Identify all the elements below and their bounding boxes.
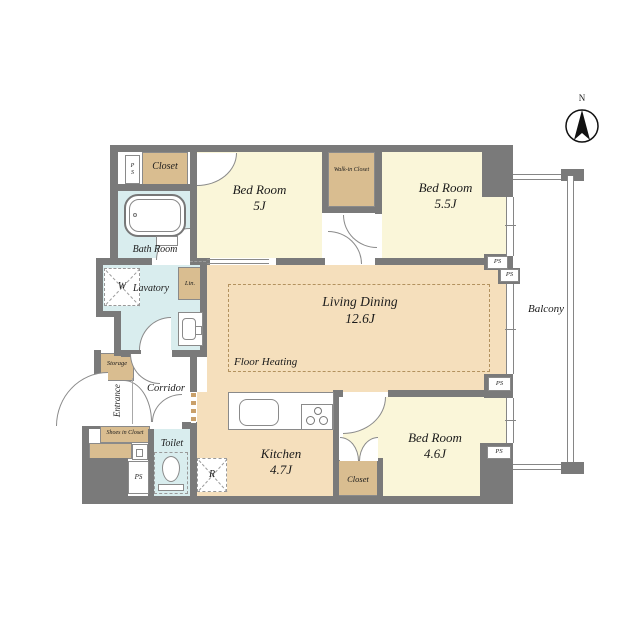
room-name: Living Dining <box>300 294 420 311</box>
stove-burner <box>314 407 322 415</box>
wall-bottom-left-sliver <box>82 426 89 460</box>
room-name: Bed Room <box>384 180 507 196</box>
label-bath-room: Bath Room <box>120 244 190 257</box>
label-closet-north: Closet <box>142 161 188 174</box>
wall-h2-b <box>172 350 207 357</box>
room-name: Bed Room <box>375 430 495 446</box>
room-size: 5.5J <box>384 196 507 212</box>
window-bedroom-5-5j <box>506 197 514 256</box>
kitchen-sink <box>239 399 279 426</box>
label-corridor: Corridor <box>132 382 200 395</box>
floor-plan: W R PS PS PS PS PS PS N Bed Room 5J Bed <box>0 0 640 640</box>
label-entrance: Entrance <box>100 378 134 424</box>
room-name: Kitchen <box>231 446 331 462</box>
ps-shaft-top-left: PS <box>125 155 140 184</box>
ps-shaft-right-2: PS <box>500 269 519 282</box>
sliding-door-corridor <box>191 393 196 423</box>
partition-dash <box>190 261 206 262</box>
wall-wic-right <box>375 152 382 214</box>
wall-wic-bottom <box>322 207 382 213</box>
label-walk-in-closet: Walk-in Closet <box>327 167 376 175</box>
label-lavatory: Lavatory <box>116 283 186 296</box>
label-closet-south: Closet <box>338 474 378 485</box>
window-tick <box>505 225 516 226</box>
wall-h1-a <box>96 258 152 265</box>
stove-burner <box>306 416 315 425</box>
walk-in-closet-box <box>328 152 375 207</box>
ps-shaft-label: PS <box>130 163 136 177</box>
label-bedroom-4-6j: Bed Room 4.6J <box>375 430 495 463</box>
wall-h3-b <box>182 422 197 429</box>
ps-shaft-right-3: PS <box>488 377 511 391</box>
toilet-bowl <box>162 456 180 482</box>
shoes-closet-box-lower <box>89 443 132 459</box>
window-tick <box>505 329 516 330</box>
label-floor-heating: Floor Heating <box>234 356 344 370</box>
window-living-dining <box>506 284 514 374</box>
partition-line-top <box>207 259 269 260</box>
balcony-rail-cap-bottom <box>561 462 584 474</box>
wall-lavatory-left <box>96 262 103 317</box>
label-living-dining: Living Dining 12.6J <box>300 294 420 328</box>
compass-icon <box>560 90 604 152</box>
ps-shaft-right-1: PS <box>487 256 508 269</box>
toilet-fixture-outline <box>154 452 188 494</box>
kitchen-stove <box>301 404 333 430</box>
balcony-rail-right <box>567 176 574 470</box>
entrance-cabinet <box>132 444 148 460</box>
room-name: Bed Room <box>197 182 322 198</box>
room-size: 4.6J <box>375 446 495 462</box>
label-storage: Storage <box>100 360 134 368</box>
label-bedroom-5-5j: Bed Room 5.5J <box>384 180 507 213</box>
balcony-rail-top <box>513 174 561 180</box>
entrance-cabinet-handle <box>136 449 143 457</box>
door-arc-toilet <box>152 394 182 422</box>
balcony-rail-bottom <box>513 464 561 470</box>
basin-handle <box>195 326 202 335</box>
ps-shaft-bottom-left: PS <box>128 461 149 494</box>
room-size: 4.7J <box>231 462 331 478</box>
label-kitchen: Kitchen 4.7J <box>231 446 331 479</box>
label-bedroom-5j: Bed Room 5J <box>197 182 322 215</box>
wall-lavatory-step-v <box>114 317 121 356</box>
fridge-label: R <box>198 459 226 491</box>
door-arc-storage <box>130 354 160 384</box>
basin-bowl <box>182 318 196 340</box>
toilet-tank <box>158 484 184 491</box>
room-size: 5J <box>197 198 322 214</box>
wall-bottom <box>82 496 513 504</box>
bathtub-faucet <box>133 213 137 217</box>
label-shoes-closet: Shoes in Closet <box>100 430 150 438</box>
wall-bed5j-left <box>190 145 197 258</box>
wall-left-upper <box>110 145 118 262</box>
wall-closet-bath-divider <box>110 184 190 191</box>
room-size: 12.6J <box>300 311 420 328</box>
room-name: Entrance <box>111 385 122 418</box>
window-tick <box>505 420 516 421</box>
label-balcony: Balcony <box>516 303 576 317</box>
wall-toilet-right <box>190 424 197 496</box>
basin-cabinet <box>178 312 203 346</box>
label-linen: Lin. <box>178 280 202 288</box>
wall-h1-c <box>276 258 325 265</box>
fridge-space: R <box>197 458 227 492</box>
wall-wic-left <box>322 152 328 213</box>
wall-h4-a <box>333 390 343 397</box>
label-toilet: Toilet <box>152 438 192 451</box>
partition-line-bottom <box>207 263 269 264</box>
stove-burner <box>319 416 328 425</box>
bathtub <box>124 194 186 237</box>
window-bedroom-4-6j <box>506 398 514 443</box>
wall-top <box>110 145 513 152</box>
